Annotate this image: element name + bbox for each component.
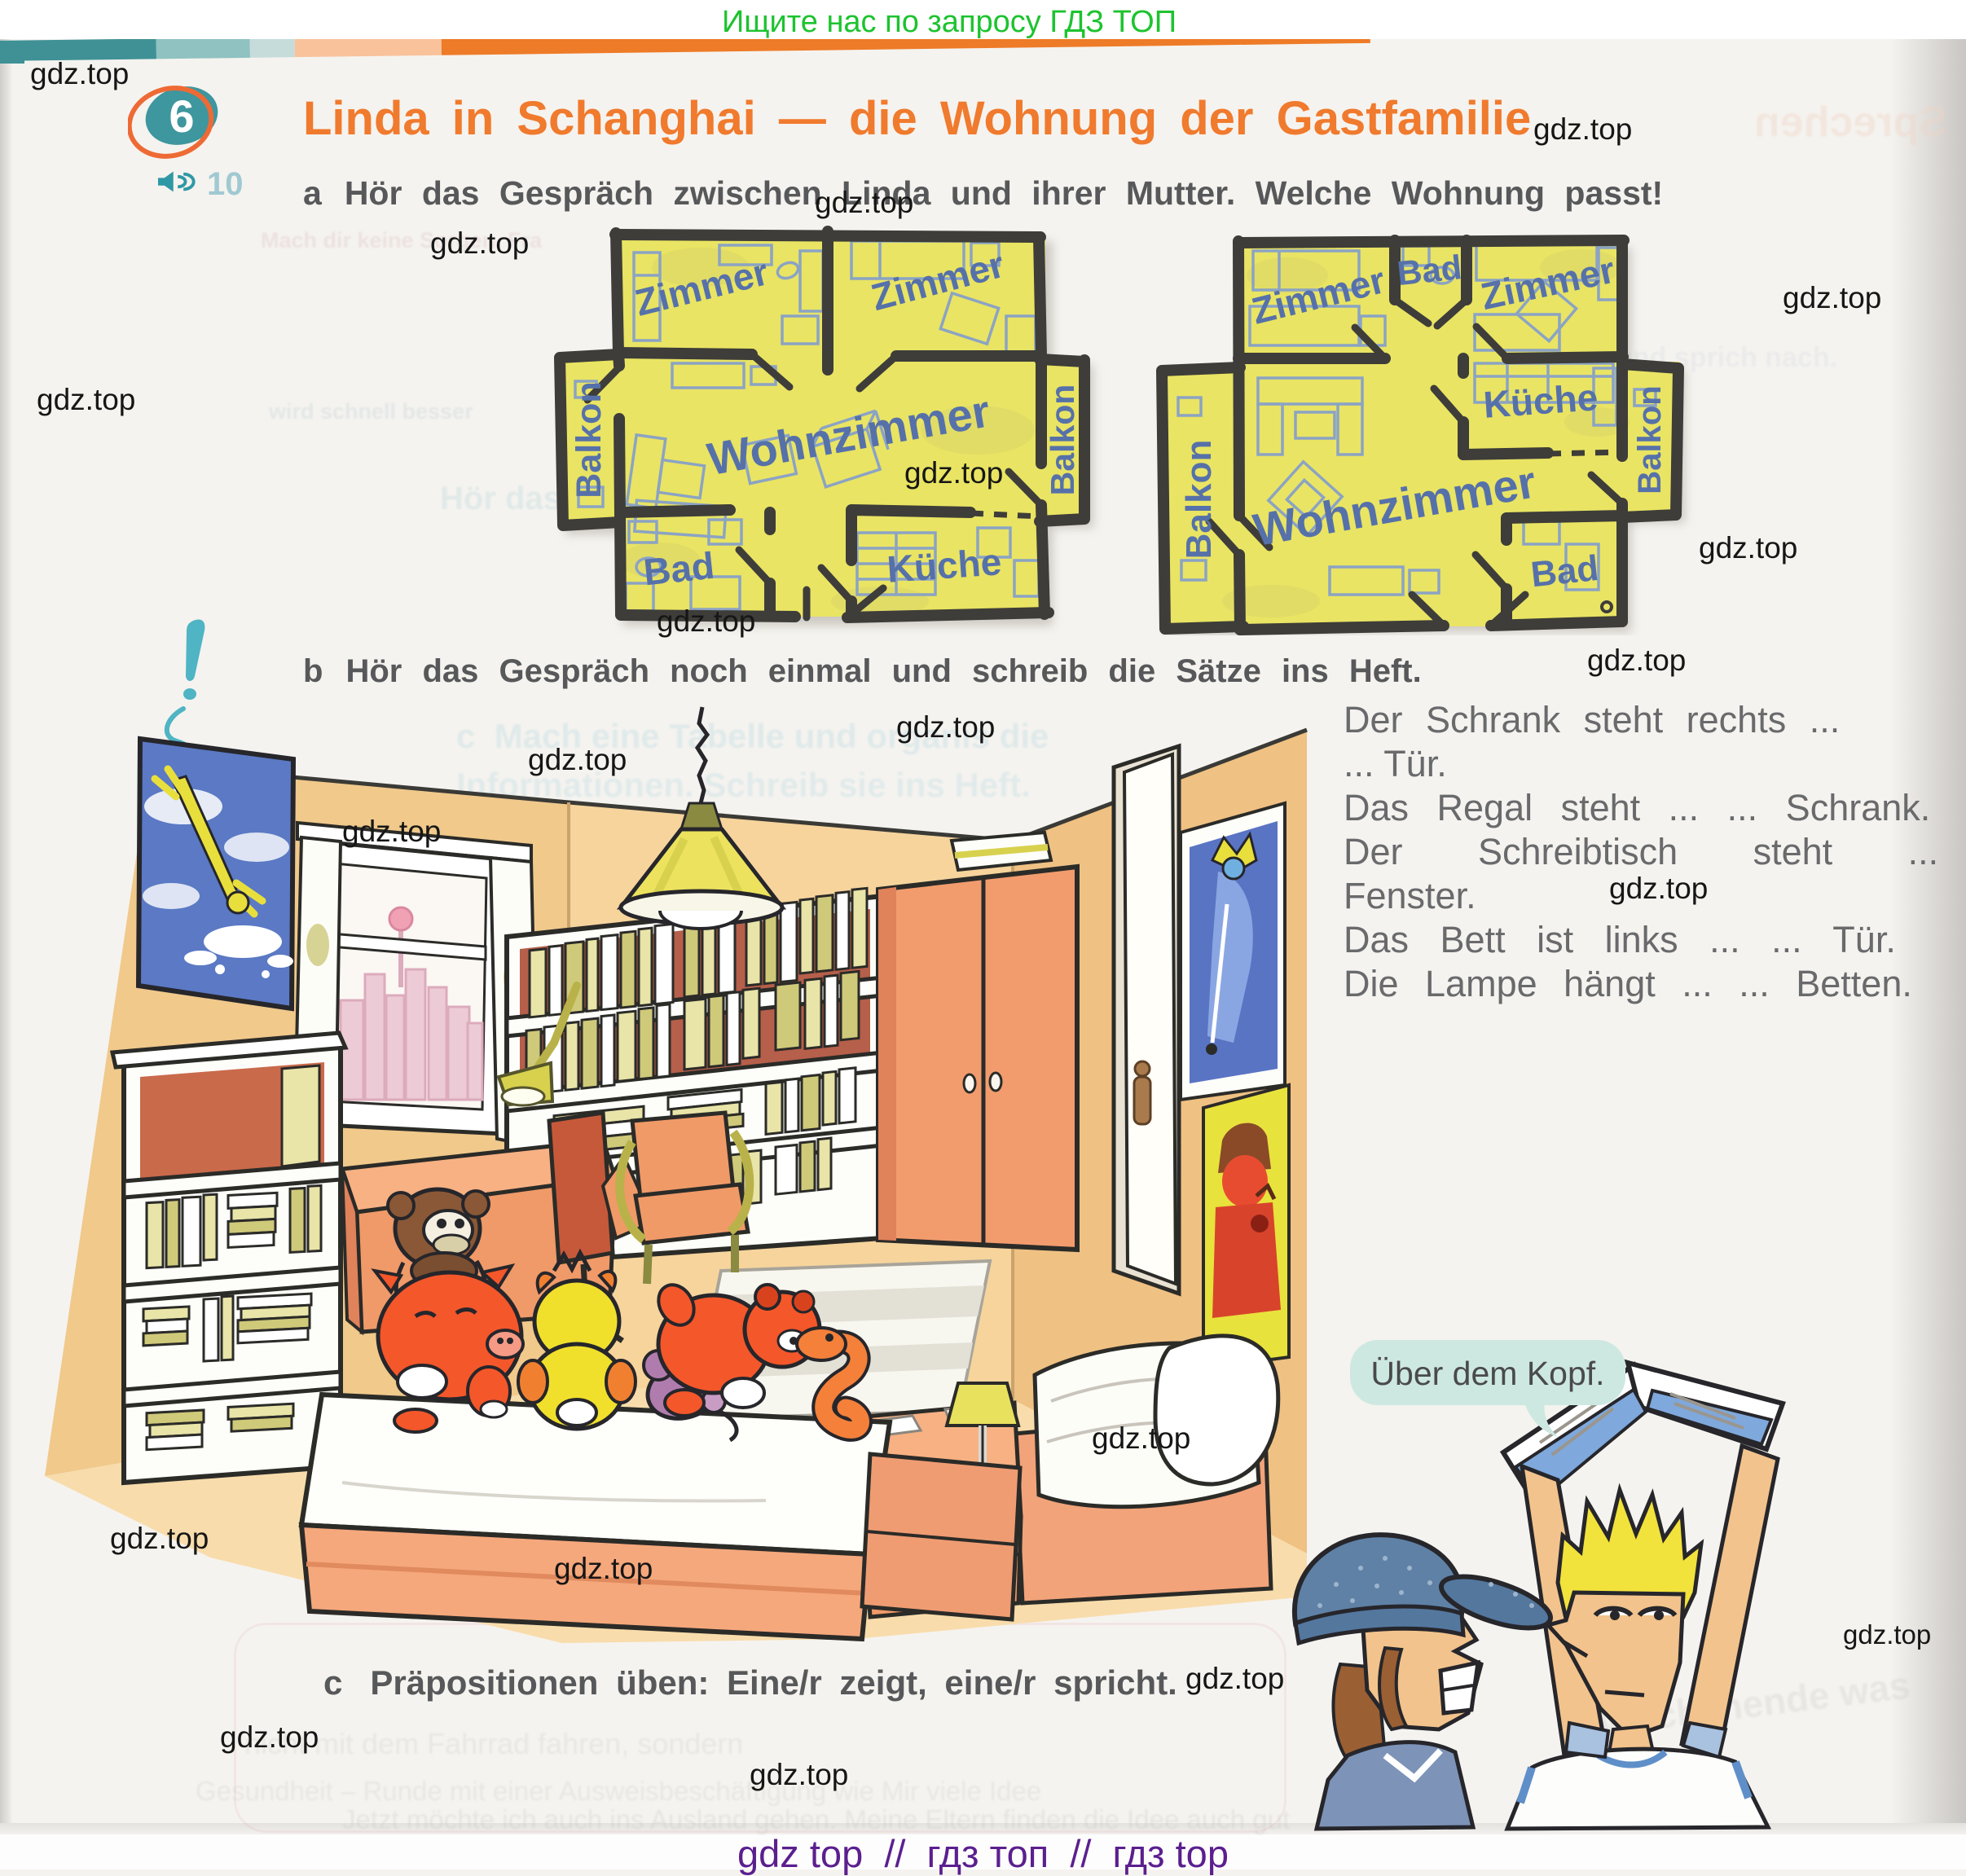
svg-text:Balkon: Balkon <box>1632 385 1668 494</box>
svg-text:Bad: Bad <box>1529 548 1601 595</box>
svg-text:Küche: Küche <box>1482 376 1599 426</box>
svg-text:6: 6 <box>169 90 194 142</box>
svg-text:Bad: Bad <box>641 544 716 594</box>
svg-text:Balkon: Balkon <box>1044 384 1081 496</box>
svg-text:Balkon: Balkon <box>1179 440 1219 560</box>
svg-text:Balkon: Balkon <box>570 381 609 498</box>
svg-text:Bad: Bad <box>1396 248 1464 292</box>
svg-text:Küche: Küche <box>886 540 1003 591</box>
